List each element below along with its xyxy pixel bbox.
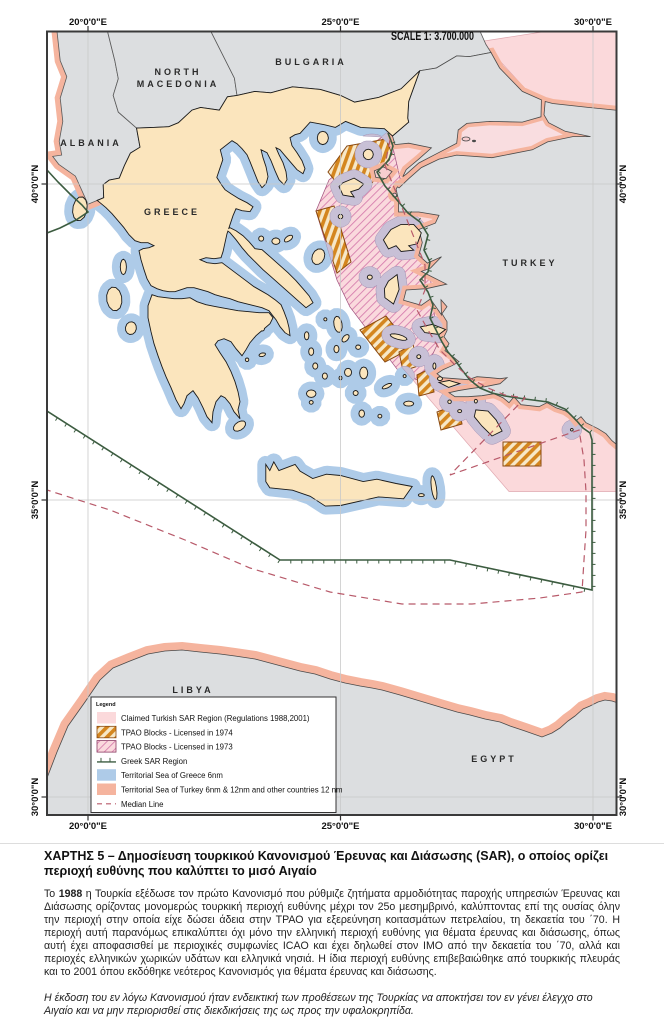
svg-text:30°0'0"E: 30°0'0"E <box>574 17 612 28</box>
svg-text:NORTH: NORTH <box>155 67 202 77</box>
svg-text:30°0'0"N: 30°0'0"N <box>30 778 41 817</box>
svg-text:40°0'0"N: 40°0'0"N <box>618 165 629 204</box>
svg-text:GREECE: GREECE <box>144 207 200 217</box>
svg-text:25°0'0"E: 25°0'0"E <box>321 17 359 28</box>
svg-text:EGYPT: EGYPT <box>471 754 517 764</box>
svg-text:BULGARIA: BULGARIA <box>275 57 347 67</box>
svg-text:TURKEY: TURKEY <box>502 258 557 268</box>
svg-text:35°0'0"N: 35°0'0"N <box>618 481 629 520</box>
svg-text:30°0'0"E: 30°0'0"E <box>574 821 612 832</box>
svg-text:40°0'0"N: 40°0'0"N <box>30 165 41 204</box>
svg-text:SCALE 1: 3.700.000: SCALE 1: 3.700.000 <box>391 29 474 43</box>
svg-text:20°0'0"E: 20°0'0"E <box>69 821 107 832</box>
svg-text:Territorial Sea of Greece 6nm: Territorial Sea of Greece 6nm <box>121 771 223 780</box>
svg-text:Legend: Legend <box>96 702 116 708</box>
svg-text:TPAO Blocks - Licensed in 1974: TPAO Blocks - Licensed in 1974 <box>121 728 233 737</box>
svg-text:Median Line: Median Line <box>121 800 163 809</box>
svg-text:ALBANIA: ALBANIA <box>60 138 122 148</box>
svg-text:20°0'0"E: 20°0'0"E <box>69 17 107 28</box>
svg-text:Territorial Sea of Turkey 6nm: Territorial Sea of Turkey 6nm & 12nm and… <box>121 786 342 795</box>
svg-text:30°0'0"N: 30°0'0"N <box>618 778 629 817</box>
svg-text:TPAO Blocks - Licensed in 1973: TPAO Blocks - Licensed in 1973 <box>121 743 233 752</box>
svg-text:35°0'0"N: 35°0'0"N <box>30 481 41 520</box>
svg-text:Claimed Turkish SAR Region (Re: Claimed Turkish SAR Region (Regulations … <box>121 714 310 723</box>
svg-text:25°0'0"E: 25°0'0"E <box>321 821 359 832</box>
svg-text:LIBYA: LIBYA <box>172 685 213 695</box>
svg-text:MACEDONIA: MACEDONIA <box>137 79 220 89</box>
svg-text:Greek SAR Region: Greek SAR Region <box>121 757 187 766</box>
